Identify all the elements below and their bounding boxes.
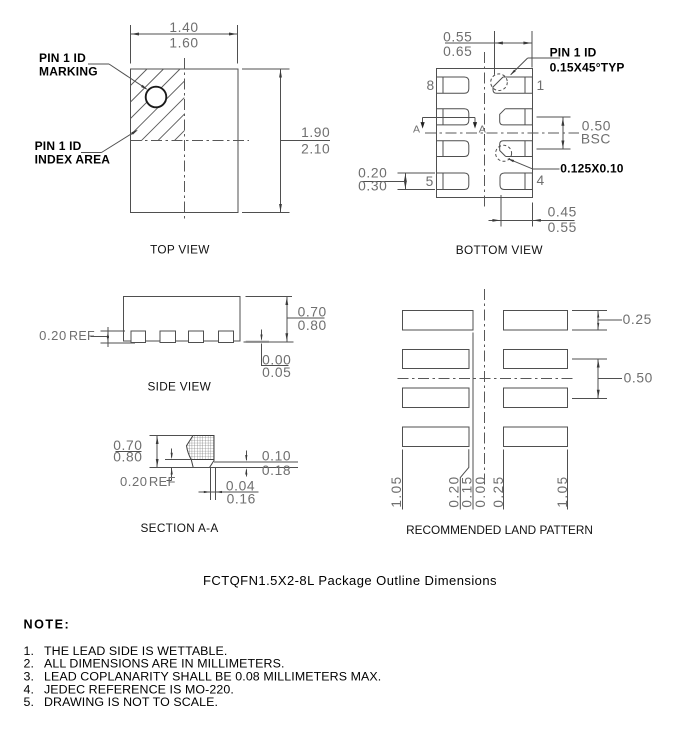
svg-text:0.10: 0.10 [262, 448, 291, 463]
svg-text:PIN 1 ID: PIN 1 ID [39, 51, 86, 65]
svg-text:0.125X0.10: 0.125X0.10 [560, 161, 624, 175]
svg-text:5: 5 [426, 174, 434, 189]
svg-text:8: 8 [427, 78, 435, 93]
svg-text:TOP VIEW: TOP VIEW [150, 243, 210, 257]
svg-text:FCTQFN1.5X2-8L Package Outline: FCTQFN1.5X2-8L Package Outline Dimension… [203, 573, 497, 588]
svg-text:1: 1 [536, 78, 544, 93]
svg-text:5.: 5. [24, 695, 35, 709]
svg-text:INDEX AREA: INDEX AREA [35, 152, 111, 166]
svg-text:RECOMMENDED LAND PATTERN: RECOMMENDED LAND PATTERN [406, 523, 593, 537]
svg-text:0.45: 0.45 [548, 205, 577, 220]
svg-text:0.15X45°TYP: 0.15X45°TYP [550, 61, 625, 75]
svg-text:0.55: 0.55 [443, 30, 472, 45]
svg-text:0.55: 0.55 [548, 220, 577, 235]
svg-text:1.90: 1.90 [301, 125, 330, 140]
svg-text:PIN 1 ID: PIN 1 ID [35, 139, 82, 153]
svg-text:BSC: BSC [581, 132, 611, 147]
svg-text:0.30: 0.30 [358, 179, 387, 194]
svg-text:0.16: 0.16 [227, 491, 256, 506]
svg-text:0.80: 0.80 [298, 318, 327, 333]
svg-text:A: A [479, 124, 486, 136]
svg-text:0.18: 0.18 [262, 463, 291, 478]
svg-text:2.10: 2.10 [301, 142, 330, 157]
svg-text:NOTE:: NOTE: [24, 618, 71, 632]
svg-text:0.65: 0.65 [443, 44, 472, 59]
svg-text:1.05: 1.05 [555, 475, 570, 507]
svg-text:4: 4 [536, 173, 544, 188]
svg-text:0.25: 0.25 [623, 312, 652, 327]
svg-text:0.05: 0.05 [262, 365, 291, 380]
svg-text:0.50: 0.50 [624, 371, 653, 386]
svg-text:0.20: 0.20 [120, 474, 148, 489]
svg-text:0.20: 0.20 [39, 328, 67, 343]
svg-text:REF: REF [149, 474, 176, 489]
svg-text:1.60: 1.60 [169, 36, 198, 51]
svg-text:DRAWING IS NOT TO SCALE.: DRAWING IS NOT TO SCALE. [44, 695, 218, 709]
svg-text:A: A [413, 123, 420, 135]
svg-text:1.40: 1.40 [169, 20, 198, 35]
svg-text:BOTTOM VIEW: BOTTOM VIEW [456, 243, 544, 257]
svg-text:1.05: 1.05 [389, 475, 404, 507]
svg-text:0.25: 0.25 [491, 475, 506, 507]
svg-text:SIDE VIEW: SIDE VIEW [147, 379, 211, 393]
svg-text:MARKING: MARKING [39, 64, 98, 78]
svg-text:0.80: 0.80 [113, 450, 142, 465]
svg-text:SECTION A-A: SECTION A-A [140, 521, 218, 535]
svg-text:0.00: 0.00 [473, 475, 488, 507]
